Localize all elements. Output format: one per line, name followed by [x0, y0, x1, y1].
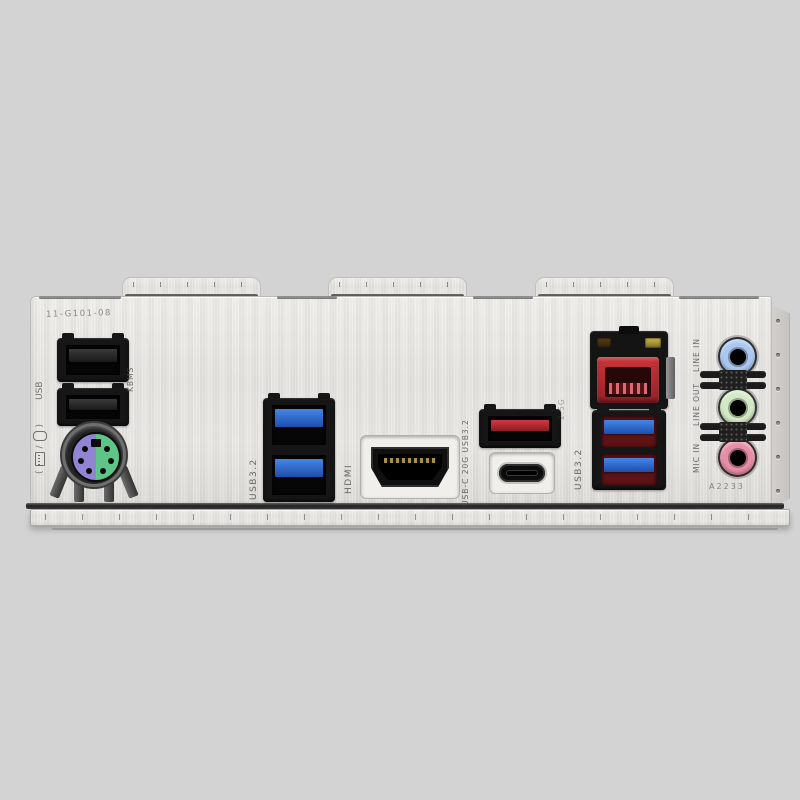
hdmi-port [371, 447, 449, 487]
port-ear [112, 383, 124, 389]
mouse-icon [33, 431, 47, 441]
vent-grille-2 [700, 423, 766, 441]
ps2-pin [86, 468, 92, 474]
plate-edge-segment [277, 296, 337, 299]
hdmi-pins [384, 458, 436, 463]
usb3-red-stack [592, 410, 666, 490]
rivet-hole [776, 353, 780, 357]
vent-perforations [719, 370, 747, 390]
usb-print-label: USB [35, 381, 45, 399]
ps2-face [71, 432, 121, 482]
usb2-opening [66, 345, 120, 375]
ps2-pin [104, 446, 110, 452]
usb2-opening [66, 395, 120, 419]
hdmi-recess [360, 435, 460, 499]
hdmi-label: HDMI [344, 464, 354, 494]
rivet-hole [776, 319, 780, 323]
usb3-tongue [604, 420, 654, 434]
usb2-port-1 [57, 338, 129, 382]
ps2-port [56, 424, 132, 502]
usb3-blue-port-1 [272, 405, 326, 445]
slash: / [35, 445, 45, 448]
bottom-code-print: A2233 [709, 482, 745, 491]
port-ear [649, 405, 661, 411]
usb-c-slot [507, 471, 537, 475]
usb3-tongue [275, 459, 323, 477]
usb2-tongue [69, 399, 117, 410]
lan-top-tab [619, 326, 639, 334]
ps2-pin [100, 468, 106, 474]
port-ear [318, 393, 330, 399]
port-ear [112, 333, 124, 339]
usb-red-opening [488, 416, 552, 441]
usb3-blue-stack [263, 398, 335, 502]
kbms-label: KBMS [126, 367, 135, 392]
ps2-pin [78, 458, 84, 464]
port-ear [597, 405, 609, 411]
line-out-label: LINE OUT [692, 383, 701, 426]
jack-hole [730, 349, 746, 365]
rivet-hole [776, 489, 780, 493]
shield-bottom-lip [30, 509, 790, 526]
paren-close: ) [35, 424, 45, 428]
io-shield-photo: 11-G101-08 ( / ) USB KBMS [0, 0, 800, 800]
usb32-blue-label: USB3.2 [249, 458, 259, 500]
part-number-print: 11-G101-08 [46, 308, 112, 320]
ps2-pin [82, 446, 88, 452]
usb-c-recess [489, 452, 555, 494]
usb32-red-label: USB3.2 [574, 448, 584, 490]
jack-hole [730, 450, 746, 466]
lan-jack [597, 357, 659, 403]
jack-hole [730, 400, 746, 416]
plate-edge-segment [679, 296, 759, 299]
vent-perforations [719, 422, 747, 442]
port-ear [62, 383, 74, 389]
lan-opening [605, 367, 651, 397]
port-ear [544, 404, 556, 410]
ps2-pin [108, 458, 114, 464]
rivet-hole [776, 421, 780, 425]
lan-contact-teeth [609, 383, 647, 394]
port-ear [62, 333, 74, 339]
usb2-tongue [69, 349, 117, 362]
ps2-key-slot [91, 439, 101, 447]
usb2-port-2 [57, 388, 129, 426]
usb3-blue-port-2 [272, 455, 326, 495]
lan-led-right [645, 338, 661, 348]
audio-jack-mic-in [718, 438, 757, 477]
rivet-hole [776, 387, 780, 391]
lan-speed-print: 2.5G [557, 398, 566, 420]
ps2-ring [65, 426, 123, 484]
usb3-red-port-2 [601, 454, 657, 486]
line-in-label: LINE IN [692, 338, 701, 372]
kbms-usb-print: ( / ) USB [33, 381, 47, 474]
tab-tick-marks [133, 282, 250, 287]
usb-red-tongue [491, 420, 549, 431]
tab-tick-marks [339, 282, 456, 287]
paren-open: ( [35, 470, 45, 474]
usb-c-port [499, 464, 545, 482]
keyboard-icon [35, 452, 45, 466]
lan-port [590, 331, 668, 409]
lip-tick-marks [45, 514, 775, 520]
shield-bottom-shadow-line [52, 528, 778, 530]
lan-led-left [597, 338, 611, 348]
rivet-hole [776, 455, 780, 459]
usb3-red-port-1 [601, 416, 657, 448]
plate-edge-segment [39, 296, 121, 299]
usb3-tongue [604, 458, 654, 472]
plate-edge-segment [473, 296, 533, 299]
port-ear [268, 393, 280, 399]
tab-tick-marks [546, 282, 663, 287]
vent-grille-1 [700, 371, 766, 389]
hdmi-opening [378, 454, 442, 480]
usb-a-red-port [479, 409, 561, 448]
usb3-tongue [275, 409, 323, 427]
port-ear [484, 404, 496, 410]
mic-in-label: MIC IN [692, 443, 701, 473]
lan-metal-clip [666, 357, 675, 399]
usbc-label: USB-C 20G USB3.2 [461, 419, 470, 506]
